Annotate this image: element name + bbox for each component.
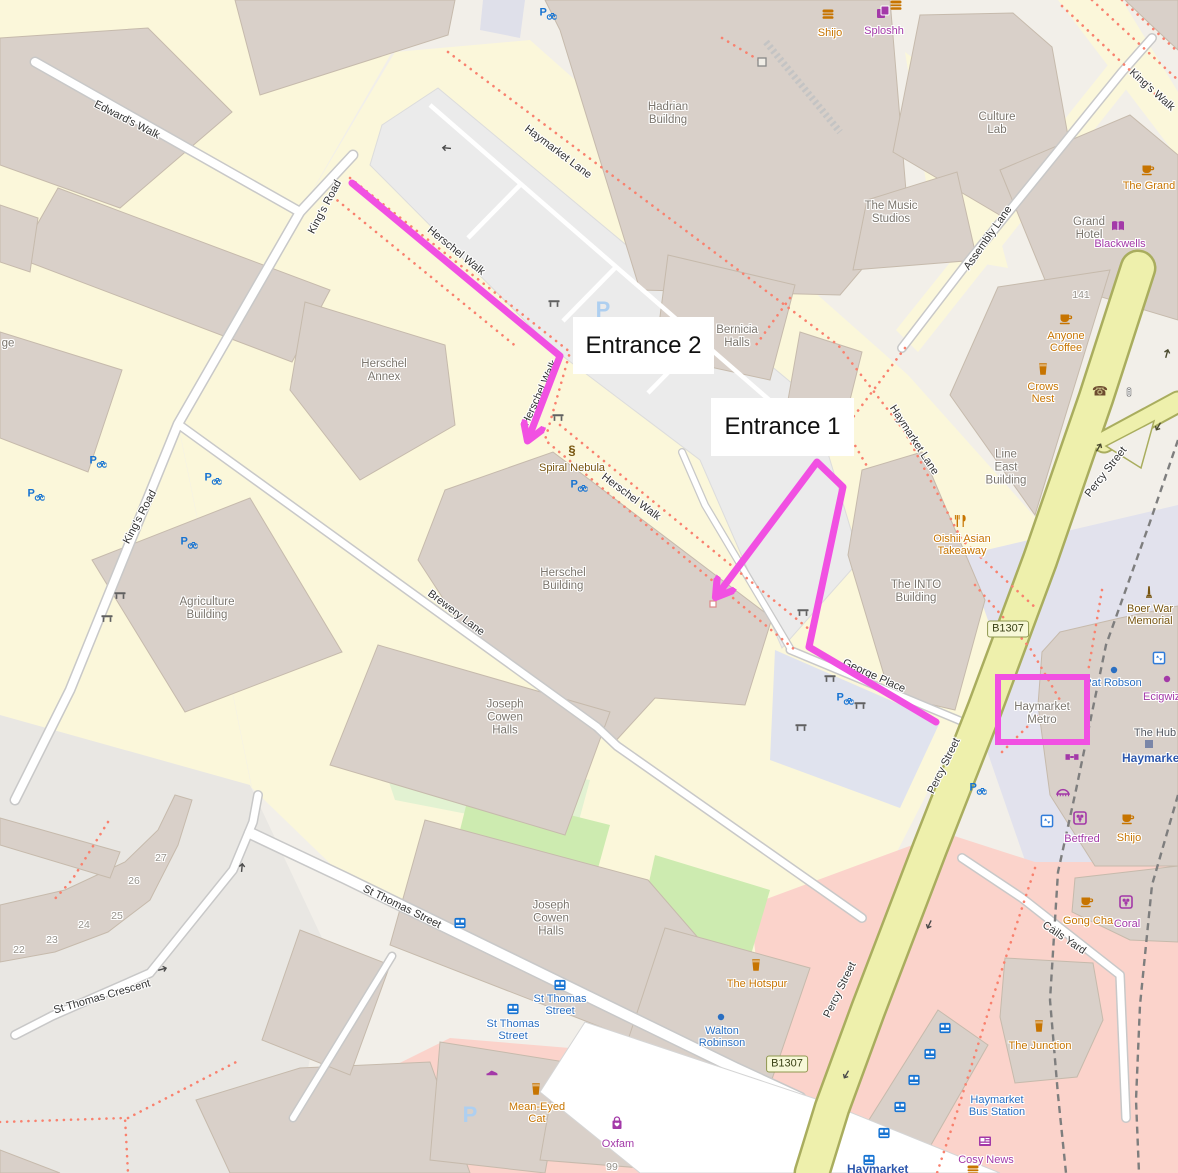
- map-canvas[interactable]: Edward's WalkKing's RoadKing's RoadKing'…: [0, 0, 1178, 1173]
- entrance-2-label: Entrance 2: [585, 332, 701, 360]
- entrance-2-callout: Entrance 2: [573, 317, 714, 374]
- haymarket-metro-highlight-box: [998, 677, 1087, 742]
- route-annotation-layer: [0, 0, 1178, 1173]
- entrance-1-callout: Entrance 1: [711, 398, 854, 456]
- entrance-1-label: Entrance 1: [724, 413, 840, 441]
- route-entrance-1: [718, 462, 936, 722]
- route-entrance-2: [352, 183, 560, 437]
